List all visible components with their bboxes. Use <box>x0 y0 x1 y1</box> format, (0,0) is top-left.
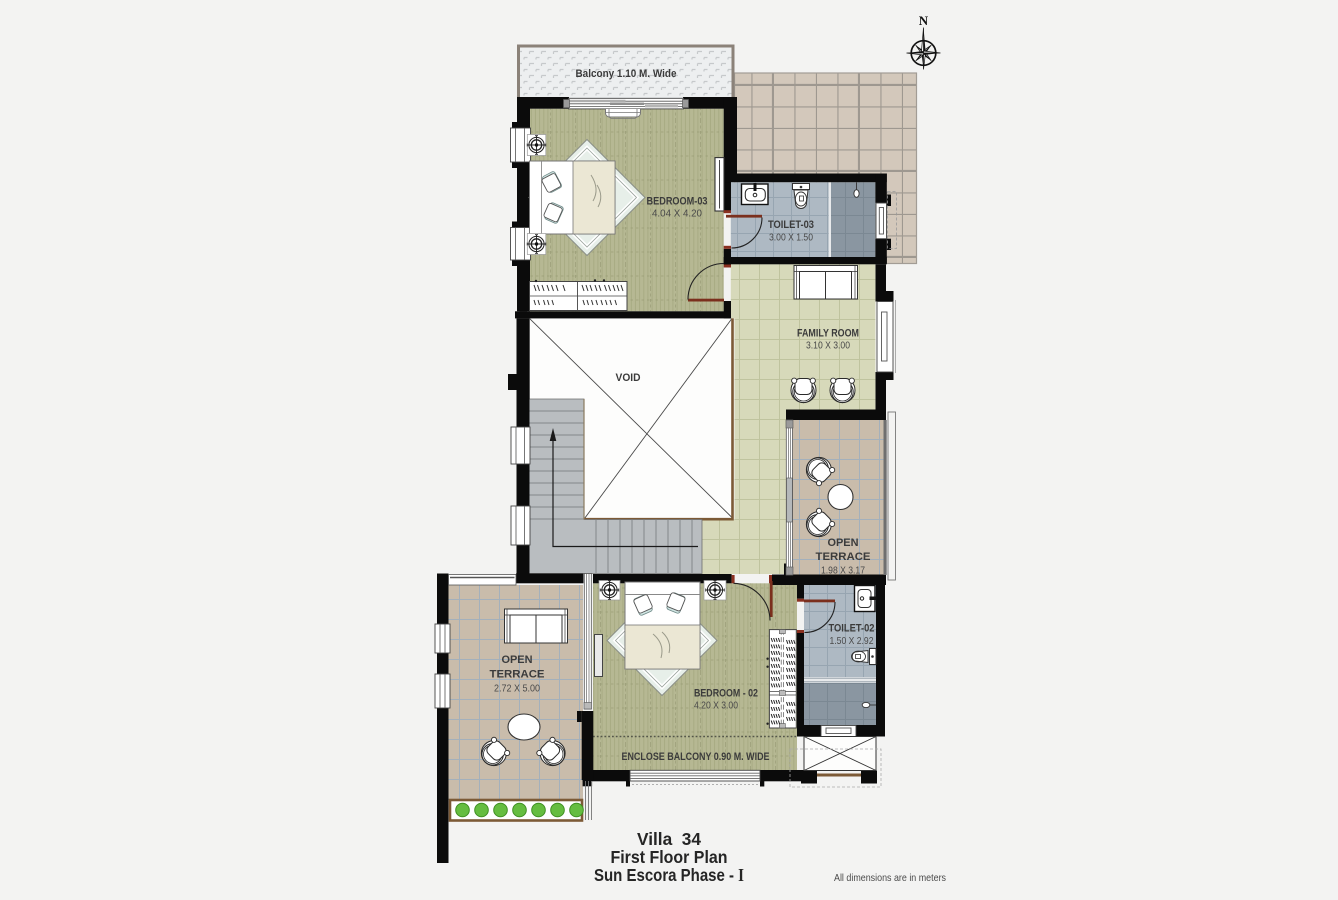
svg-text:TOILET-03: TOILET-03 <box>768 219 814 231</box>
svg-text:First Floor Plan: First Floor Plan <box>611 847 728 867</box>
svg-text:1.98 X 3.17: 1.98 X 3.17 <box>821 565 865 577</box>
svg-text:TOILET-02: TOILET-02 <box>829 623 875 635</box>
svg-text:VOID: VOID <box>616 372 641 384</box>
svg-text:4.04 X 4.20: 4.04 X 4.20 <box>652 208 702 220</box>
svg-text:OPEN: OPEN <box>502 654 533 666</box>
svg-text:ENCLOSE BALCONY 0.90 M. WIDE: ENCLOSE BALCONY 0.90 M. WIDE <box>622 751 770 763</box>
svg-text:2.72 X 5.00: 2.72 X 5.00 <box>494 683 540 695</box>
svg-text:4.20 X 3.00: 4.20 X 3.00 <box>694 700 738 712</box>
svg-text:Villa 34: Villa 34 <box>637 829 701 849</box>
svg-text:1.50 X 2.92: 1.50 X 2.92 <box>830 635 874 647</box>
svg-text:Balcony 1.10 M. Wide: Balcony 1.10 M. Wide <box>576 68 677 80</box>
svg-text:OPEN: OPEN <box>828 537 859 549</box>
svg-text:3.00 X 1.50: 3.00 X 1.50 <box>769 232 813 244</box>
svg-text:TERRACE: TERRACE <box>816 551 871 563</box>
svg-text:BEDROOM - 02: BEDROOM - 02 <box>694 688 758 700</box>
svg-text:FAMILY ROOM: FAMILY ROOM <box>797 328 859 340</box>
svg-text:3.10 X 3.00: 3.10 X 3.00 <box>806 340 850 352</box>
svg-text:TERRACE: TERRACE <box>490 669 545 681</box>
svg-text:N: N <box>919 13 929 28</box>
svg-text:Sun Escora Phase - I: Sun Escora Phase - I <box>594 865 744 885</box>
svg-text:BEDROOM-03: BEDROOM-03 <box>647 196 708 208</box>
svg-text:All dimensions are in meters: All dimensions are in meters <box>834 872 946 884</box>
